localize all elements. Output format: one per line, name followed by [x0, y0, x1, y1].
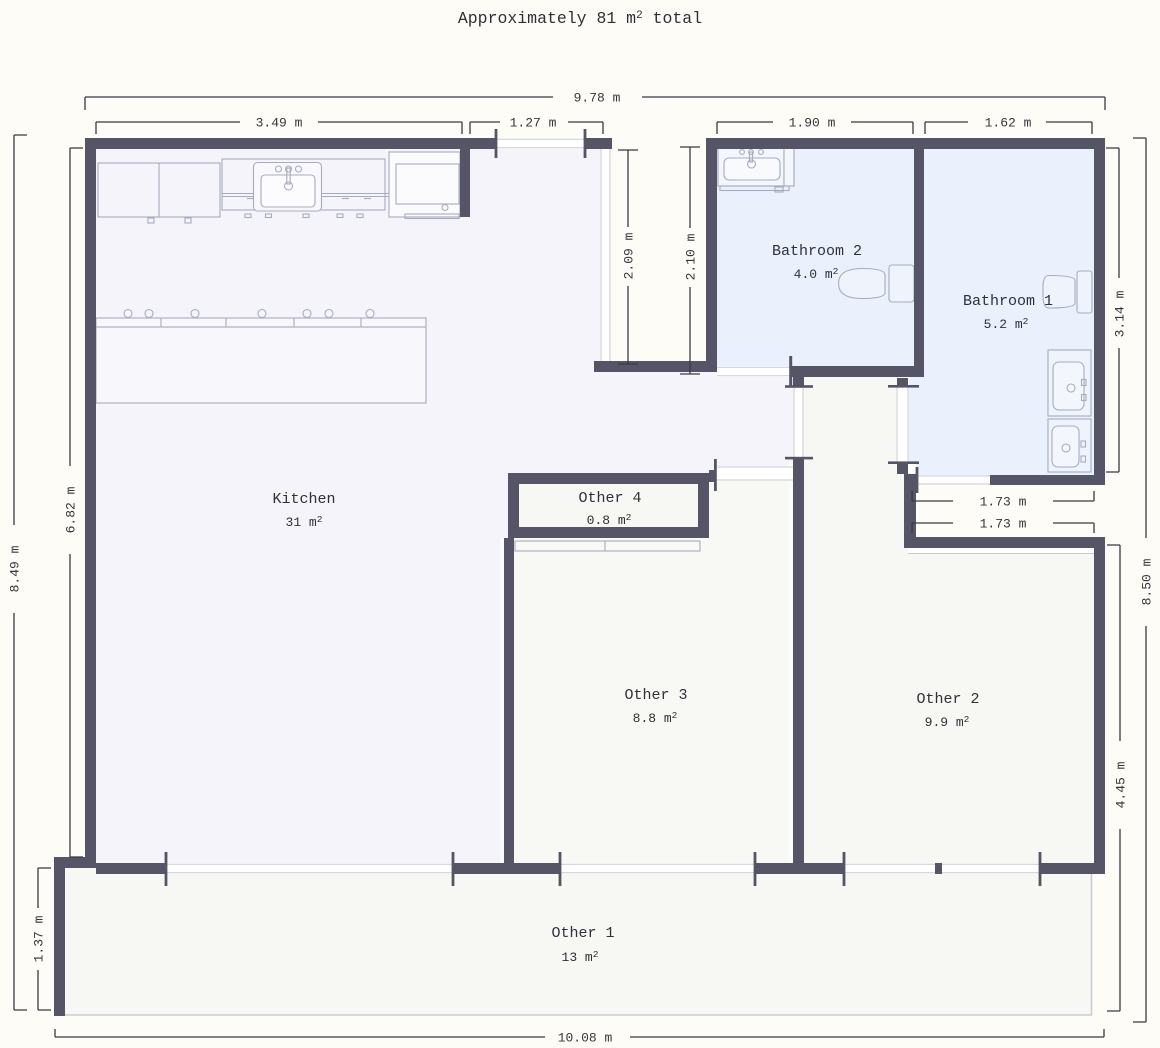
- svg-text:10.08 m: 10.08 m: [558, 1031, 613, 1046]
- svg-text:2.10 m: 2.10 m: [684, 233, 699, 280]
- svg-text:Kitchen: Kitchen: [272, 491, 335, 508]
- svg-text:Other 3: Other 3: [624, 687, 687, 704]
- svg-text:Other 4: Other 4: [578, 490, 641, 507]
- svg-text:8.50 m: 8.50 m: [1140, 558, 1155, 605]
- svg-text:4.0 m2: 4.0 m2: [794, 266, 839, 282]
- svg-text:9.78 m: 9.78 m: [574, 91, 621, 106]
- svg-text:9.9 m2: 9.9 m2: [925, 714, 970, 730]
- svg-text:6.82 m: 6.82 m: [64, 486, 79, 533]
- svg-text:Other 2: Other 2: [916, 691, 979, 708]
- svg-text:0.8 m2: 0.8 m2: [587, 512, 632, 528]
- svg-text:4.45 m: 4.45 m: [1114, 761, 1129, 808]
- svg-text:3.49 m: 3.49 m: [256, 116, 303, 131]
- svg-text:3.14 m: 3.14 m: [1113, 290, 1128, 337]
- svg-text:8.8 m2: 8.8 m2: [633, 710, 678, 726]
- svg-text:Bathroom 2: Bathroom 2: [772, 243, 862, 260]
- svg-text:1.27 m: 1.27 m: [510, 116, 557, 131]
- svg-text:8.49 m: 8.49 m: [8, 545, 23, 592]
- svg-text:Other 1: Other 1: [551, 925, 614, 942]
- svg-text:1.37 m: 1.37 m: [32, 915, 47, 962]
- svg-text:1.73 m: 1.73 m: [980, 495, 1027, 510]
- svg-text:5.2 m2: 5.2 m2: [984, 316, 1029, 332]
- svg-text:1.90 m: 1.90 m: [789, 116, 836, 131]
- svg-text:Approximately 81 m2 total: Approximately 81 m2 total: [458, 9, 702, 28]
- svg-text:2.09 m: 2.09 m: [622, 232, 637, 279]
- svg-text:1.62 m: 1.62 m: [985, 116, 1032, 131]
- svg-text:1.73 m: 1.73 m: [980, 517, 1027, 532]
- svg-text:Bathroom 1: Bathroom 1: [963, 293, 1053, 310]
